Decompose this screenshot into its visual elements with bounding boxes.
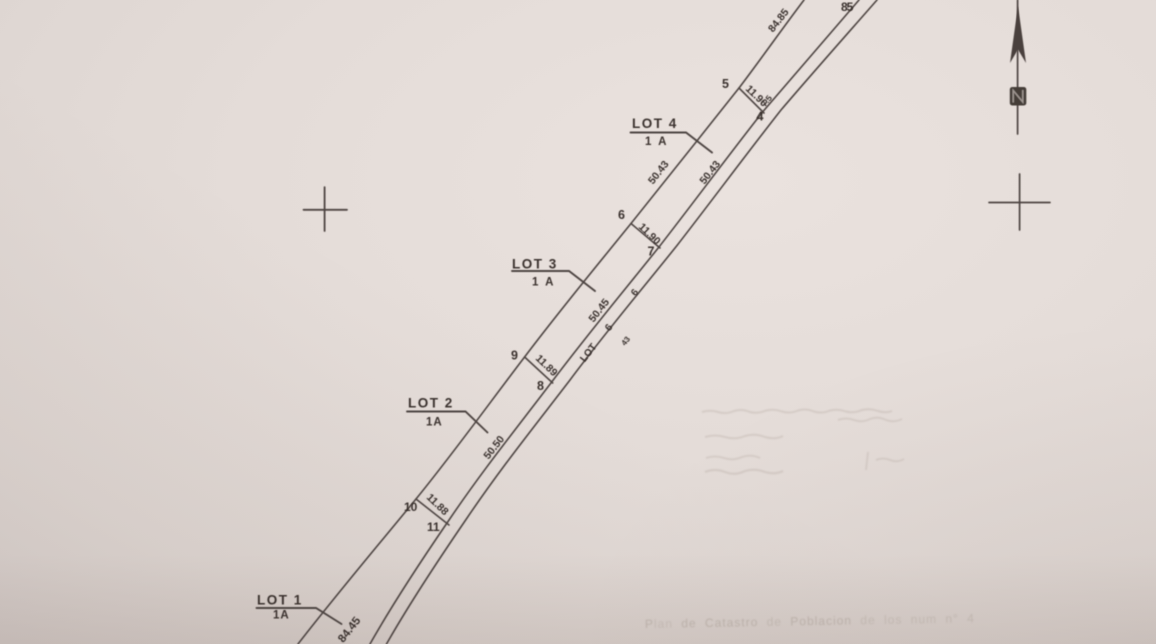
svg-text:7: 7 <box>648 245 655 259</box>
svg-text:1A: 1A <box>273 610 290 622</box>
svg-text:4: 4 <box>757 110 764 124</box>
svg-text:LOT 4: LOT 4 <box>632 116 678 131</box>
svg-text:1 A: 1 A <box>532 277 555 289</box>
svg-text:LOT 1: LOT 1 <box>257 593 303 608</box>
svg-text:11: 11 <box>427 520 440 534</box>
svg-text:9: 9 <box>511 349 518 363</box>
svg-text:LOT 2: LOT 2 <box>408 396 454 411</box>
svg-text:1A: 1A <box>426 417 443 429</box>
svg-text:8: 8 <box>537 379 544 393</box>
svg-text:85: 85 <box>841 0 854 14</box>
svg-text:6: 6 <box>618 208 625 222</box>
svg-text:10: 10 <box>404 500 418 514</box>
svg-text:LOT 3: LOT 3 <box>512 257 558 272</box>
svg-text:5: 5 <box>722 77 729 91</box>
svg-text:1 A: 1 A <box>645 136 668 148</box>
